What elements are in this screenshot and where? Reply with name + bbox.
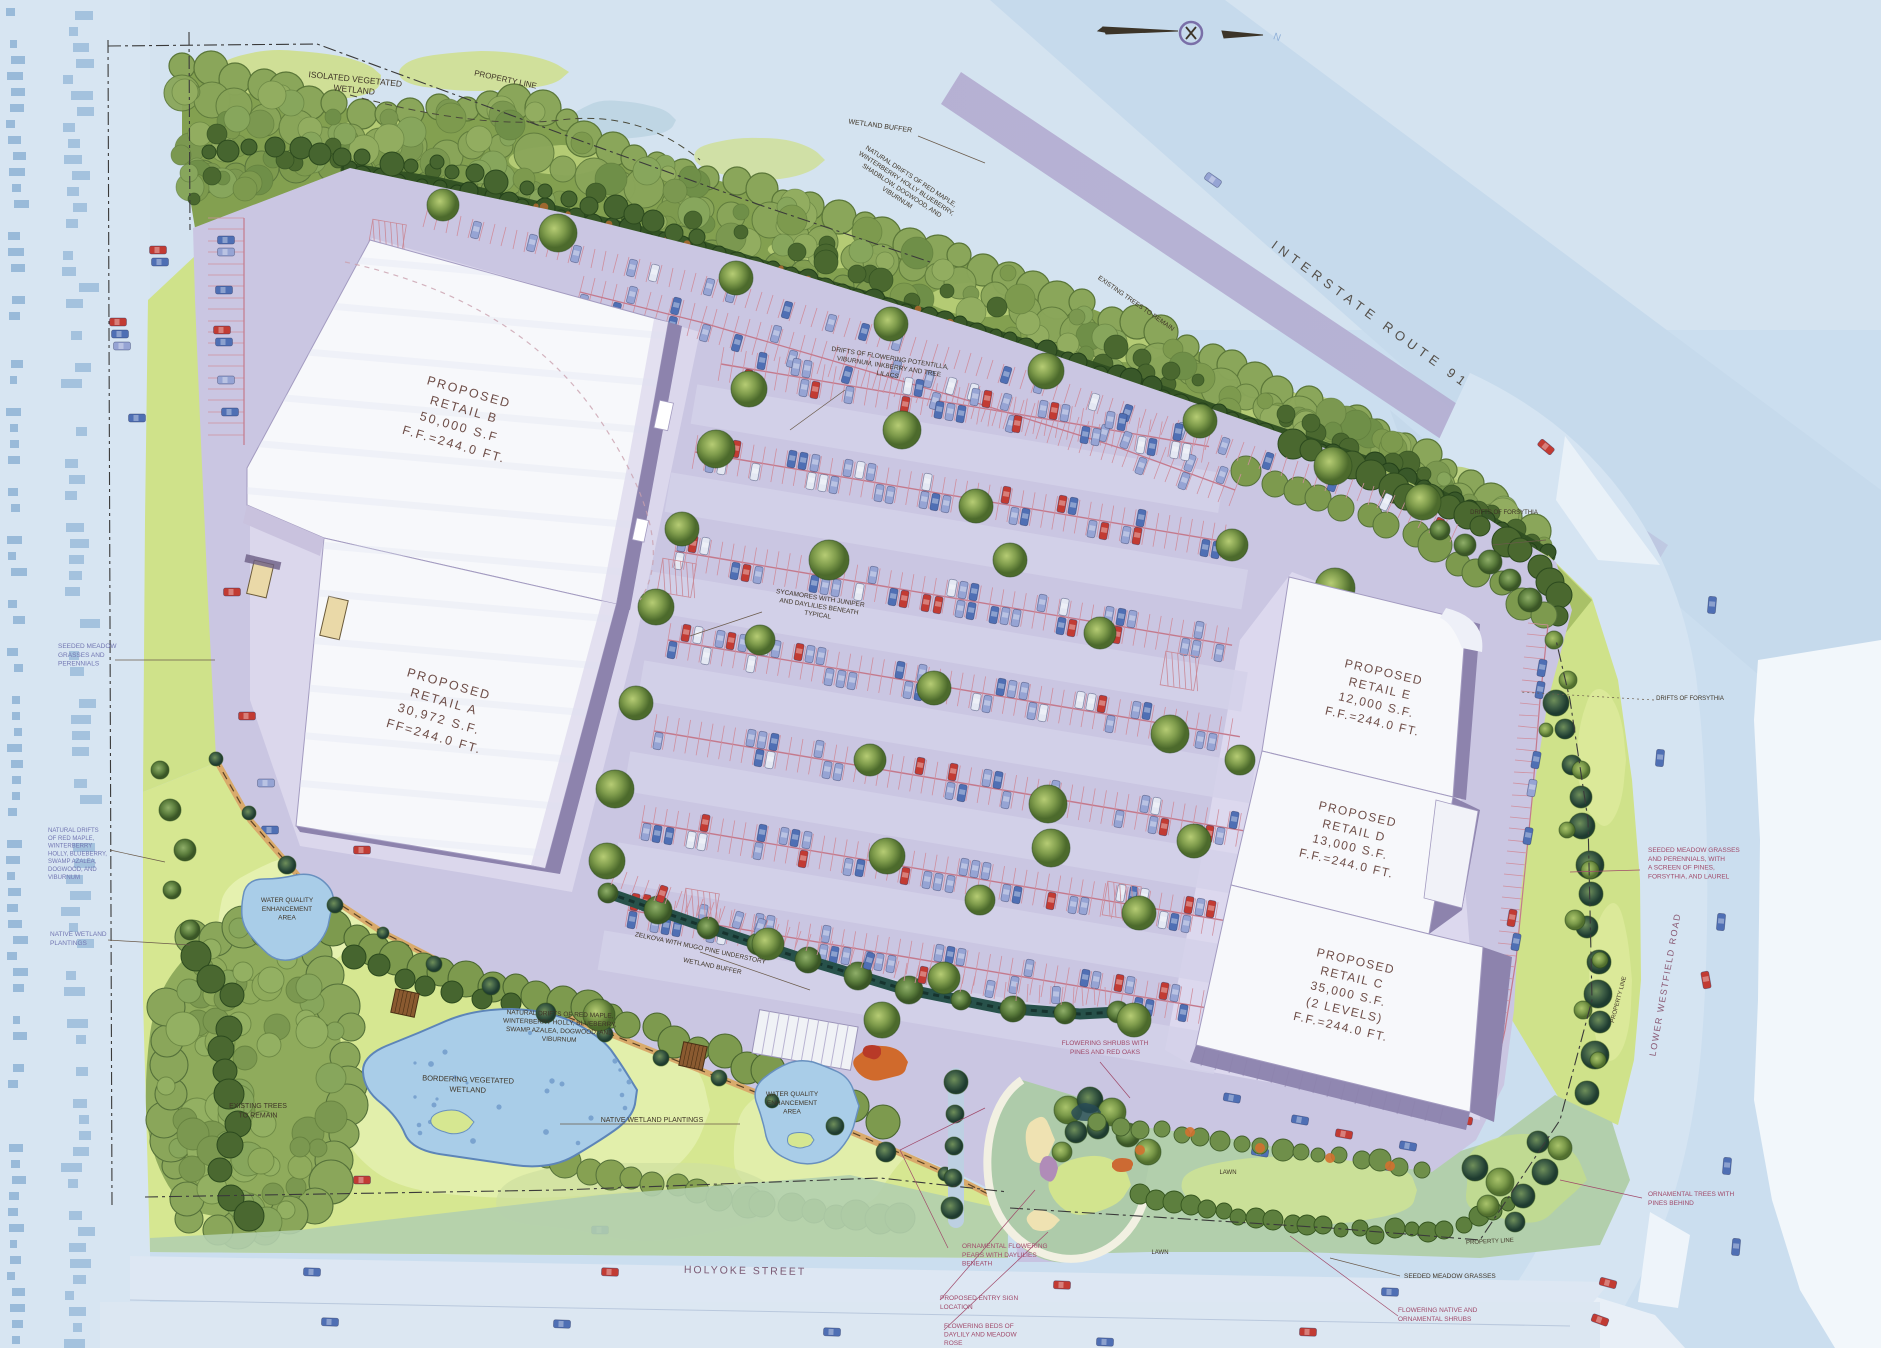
svg-text:DRIFTS OF FORSYTHIA: DRIFTS OF FORSYTHIA [1470,510,1538,516]
svg-text:FLOWERING SHRUBS WITHPINES: FLOWERING SHRUBS WITHPINES AND RED OAKS [1062,1040,1149,1056]
svg-text:FLOWERING NATIVE ANDORNAMENT: FLOWERING NATIVE ANDORNAMENTAL SHRUBS [1398,1307,1478,1323]
svg-text:NATIVE WETLAND PLANTINGS: NATIVE WETLAND PLANTINGS [601,1117,704,1124]
svg-text:DRIFTS OF FORSYTHIA: DRIFTS OF FORSYTHIA [1656,696,1724,702]
svg-text:LAWN: LAWN [1219,1170,1236,1176]
svg-text:HOLYOKE STREET: HOLYOKE STREET [684,1264,807,1278]
svg-text:LAWN: LAWN [1151,1250,1168,1256]
svg-text:SEEDED MEADOW GRASSES: SEEDED MEADOW GRASSES [1404,1273,1496,1280]
